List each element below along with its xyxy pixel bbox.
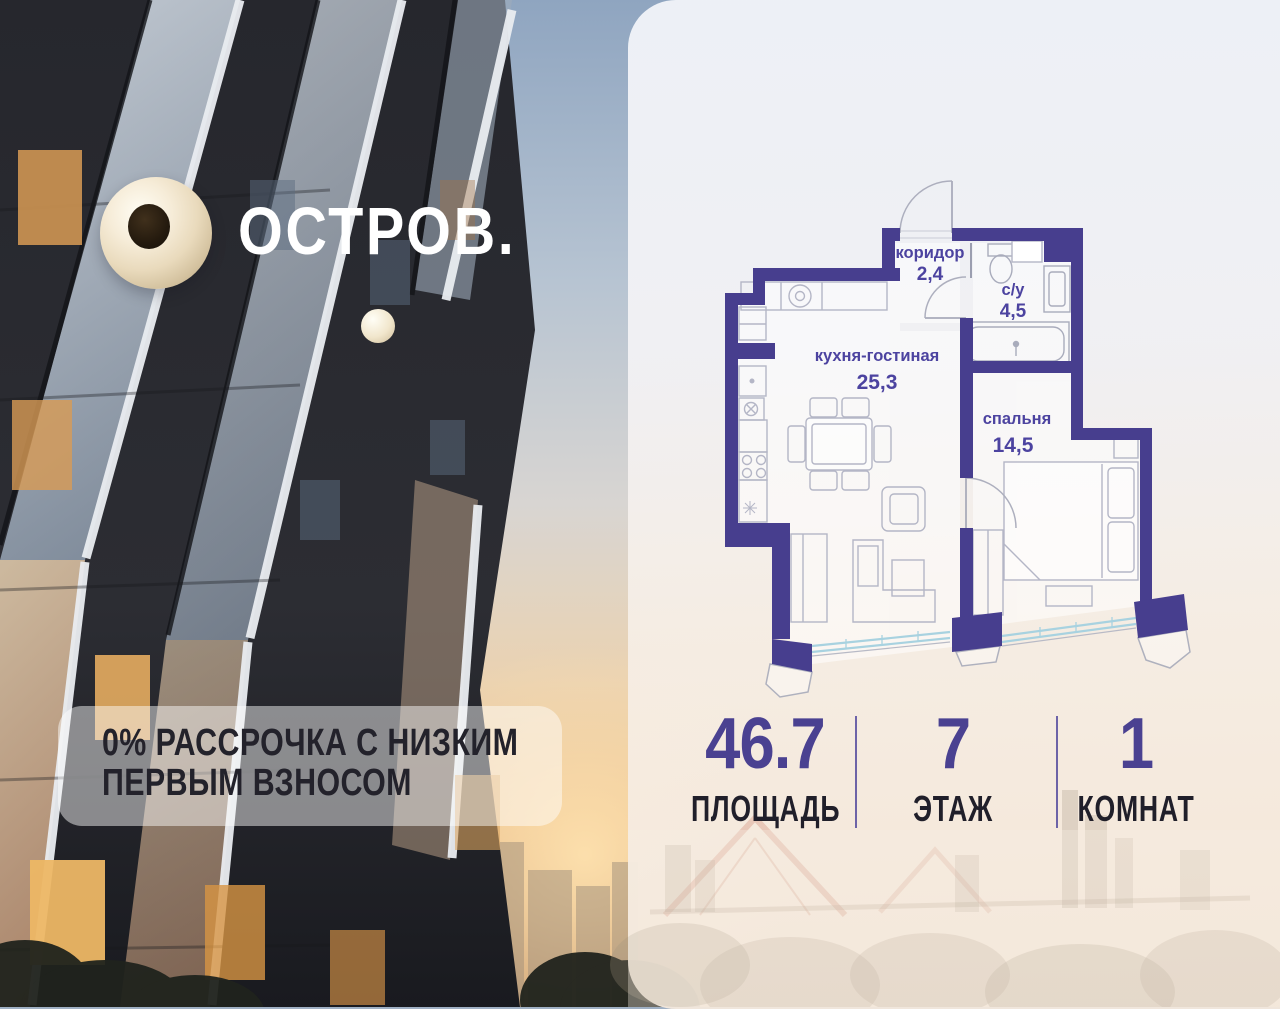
entry-door-arc — [900, 181, 952, 233]
logo-dot-icon — [361, 309, 395, 343]
bedroom-label: спальня — [983, 410, 1052, 428]
corridor-label: коридор — [896, 244, 965, 262]
bathroom-label: с/у — [1002, 281, 1026, 299]
stat-rooms-label: КОМНАТ — [1062, 792, 1210, 826]
promo-line-1: 0% РАССРОЧКА С НИЗКИМ — [102, 723, 518, 763]
kitchen-label: кухня-гостиная — [815, 347, 940, 365]
bed — [1004, 462, 1138, 580]
stat-floor-value: 7 — [865, 712, 1041, 776]
stat-rooms-value: 1 — [1048, 712, 1224, 776]
stat-floor-label: ЭТАЖ — [879, 792, 1027, 826]
promo-line-2: ПЕРВЫМ ВЗНОСОМ — [102, 763, 518, 803]
stat-area-label: ПЛОЩАДЬ — [691, 792, 839, 826]
washer-niche — [1012, 241, 1042, 262]
floorplan: коридор 2,4 с/у 4,5 кухня-гостиная 25,3 … — [0, 0, 1280, 1007]
stat-area: 46.7 ПЛОЩАДЬ — [665, 712, 865, 826]
logo-sphere-icon — [100, 177, 212, 289]
dishwasher-icon — [743, 501, 757, 515]
bedroom-area: 14,5 — [993, 434, 1034, 457]
stat-area-value: 46.7 — [677, 712, 853, 776]
logo-sphere-hole — [128, 204, 170, 249]
stat-rooms: 1 КОМНАТ — [1036, 712, 1236, 826]
bathroom-area: 4,5 — [1000, 301, 1027, 322]
stat-floor: 7 ЭТАЖ — [853, 712, 1053, 826]
corridor-area: 2,4 — [917, 264, 944, 285]
promo-card: 0% РАССРОЧКА С НИЗКИМ ПЕРВЫМ ВЗНОСОМ — [58, 706, 562, 826]
logo-text: ОСТРОВ. — [238, 198, 516, 265]
promo-text: 0% РАССРОЧКА С НИЗКИМ ПЕРВЫМ ВЗНОСОМ — [102, 723, 518, 803]
kitchen-area: 25,3 — [857, 371, 898, 394]
